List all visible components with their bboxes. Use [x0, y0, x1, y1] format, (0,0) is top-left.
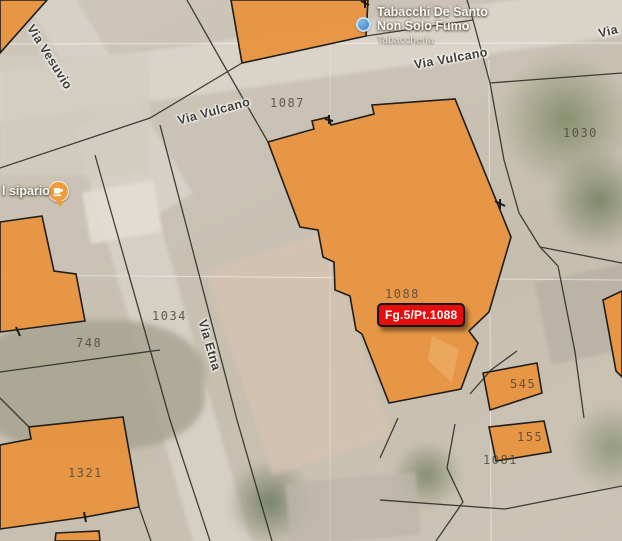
parcel-polygon-top-left[interactable]	[0, 0, 47, 53]
poi-cafe-label[interactable]: l sipario	[2, 185, 50, 199]
cadastral-overlay	[0, 0, 622, 541]
shop-blue-dot-icon[interactable]	[356, 17, 371, 32]
poi-tabacchi-name-line2: Non Solo Fumo	[377, 20, 488, 34]
parcel-polygon-155[interactable]	[489, 421, 551, 461]
parcel-polygon-1088[interactable]	[268, 99, 511, 403]
poi-tabacchi-name-line1: Tabacchi De Santo	[377, 6, 488, 20]
cafe-pin-icon[interactable]	[48, 181, 69, 202]
cadastral-map-canvas[interactable]: Via Vesuvio Via Vulcano Via Vulcano Via …	[0, 0, 622, 541]
selected-parcel-badge[interactable]: Fg.5/Pt.1088	[377, 303, 465, 327]
coffee-cup-icon	[53, 186, 64, 197]
parcel-polygon-bottom-sliver[interactable]	[55, 531, 100, 541]
parcel-polygon-right-edge[interactable]	[603, 291, 622, 377]
poi-tabacchi-label[interactable]: Tabacchi De Santo Non Solo Fumo Tabacche…	[377, 6, 488, 46]
parcel-polygon-1321[interactable]	[0, 417, 139, 529]
poi-tabacchi-subtitle: Tabaccheria	[377, 34, 488, 46]
parcel-polygon-tabacchi[interactable]	[231, 0, 368, 63]
parcel-polygon-sipario[interactable]	[0, 216, 85, 332]
